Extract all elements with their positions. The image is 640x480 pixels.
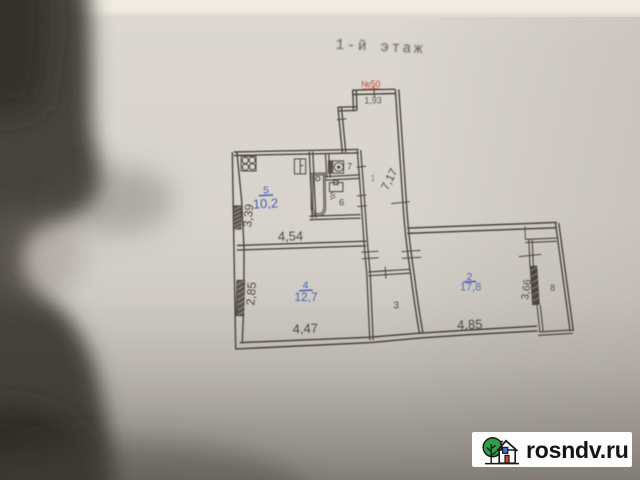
svg-text:12,7: 12,7 xyxy=(294,290,318,304)
svg-text:7,17: 7,17 xyxy=(380,167,401,192)
svg-text:3,39: 3,39 xyxy=(240,203,256,228)
svg-text:8: 8 xyxy=(550,283,555,293)
svg-text:17,8: 17,8 xyxy=(460,282,481,294)
svg-text:4,54: 4,54 xyxy=(278,228,304,244)
svg-text:7: 7 xyxy=(347,162,352,172)
svg-text:10,2: 10,2 xyxy=(252,195,278,211)
svg-text:4,47: 4,47 xyxy=(292,321,318,337)
svg-text:2,85: 2,85 xyxy=(243,281,259,306)
svg-text:1-й этаж: 1-й этаж xyxy=(335,37,425,59)
svg-text:1: 1 xyxy=(371,173,376,183)
svg-text:1,93: 1,93 xyxy=(364,95,382,105)
svg-text:№50: №50 xyxy=(361,79,380,89)
svg-text:4,85: 4,85 xyxy=(457,317,483,333)
svg-text:6: 6 xyxy=(339,198,344,209)
svg-text:3: 3 xyxy=(393,300,399,311)
